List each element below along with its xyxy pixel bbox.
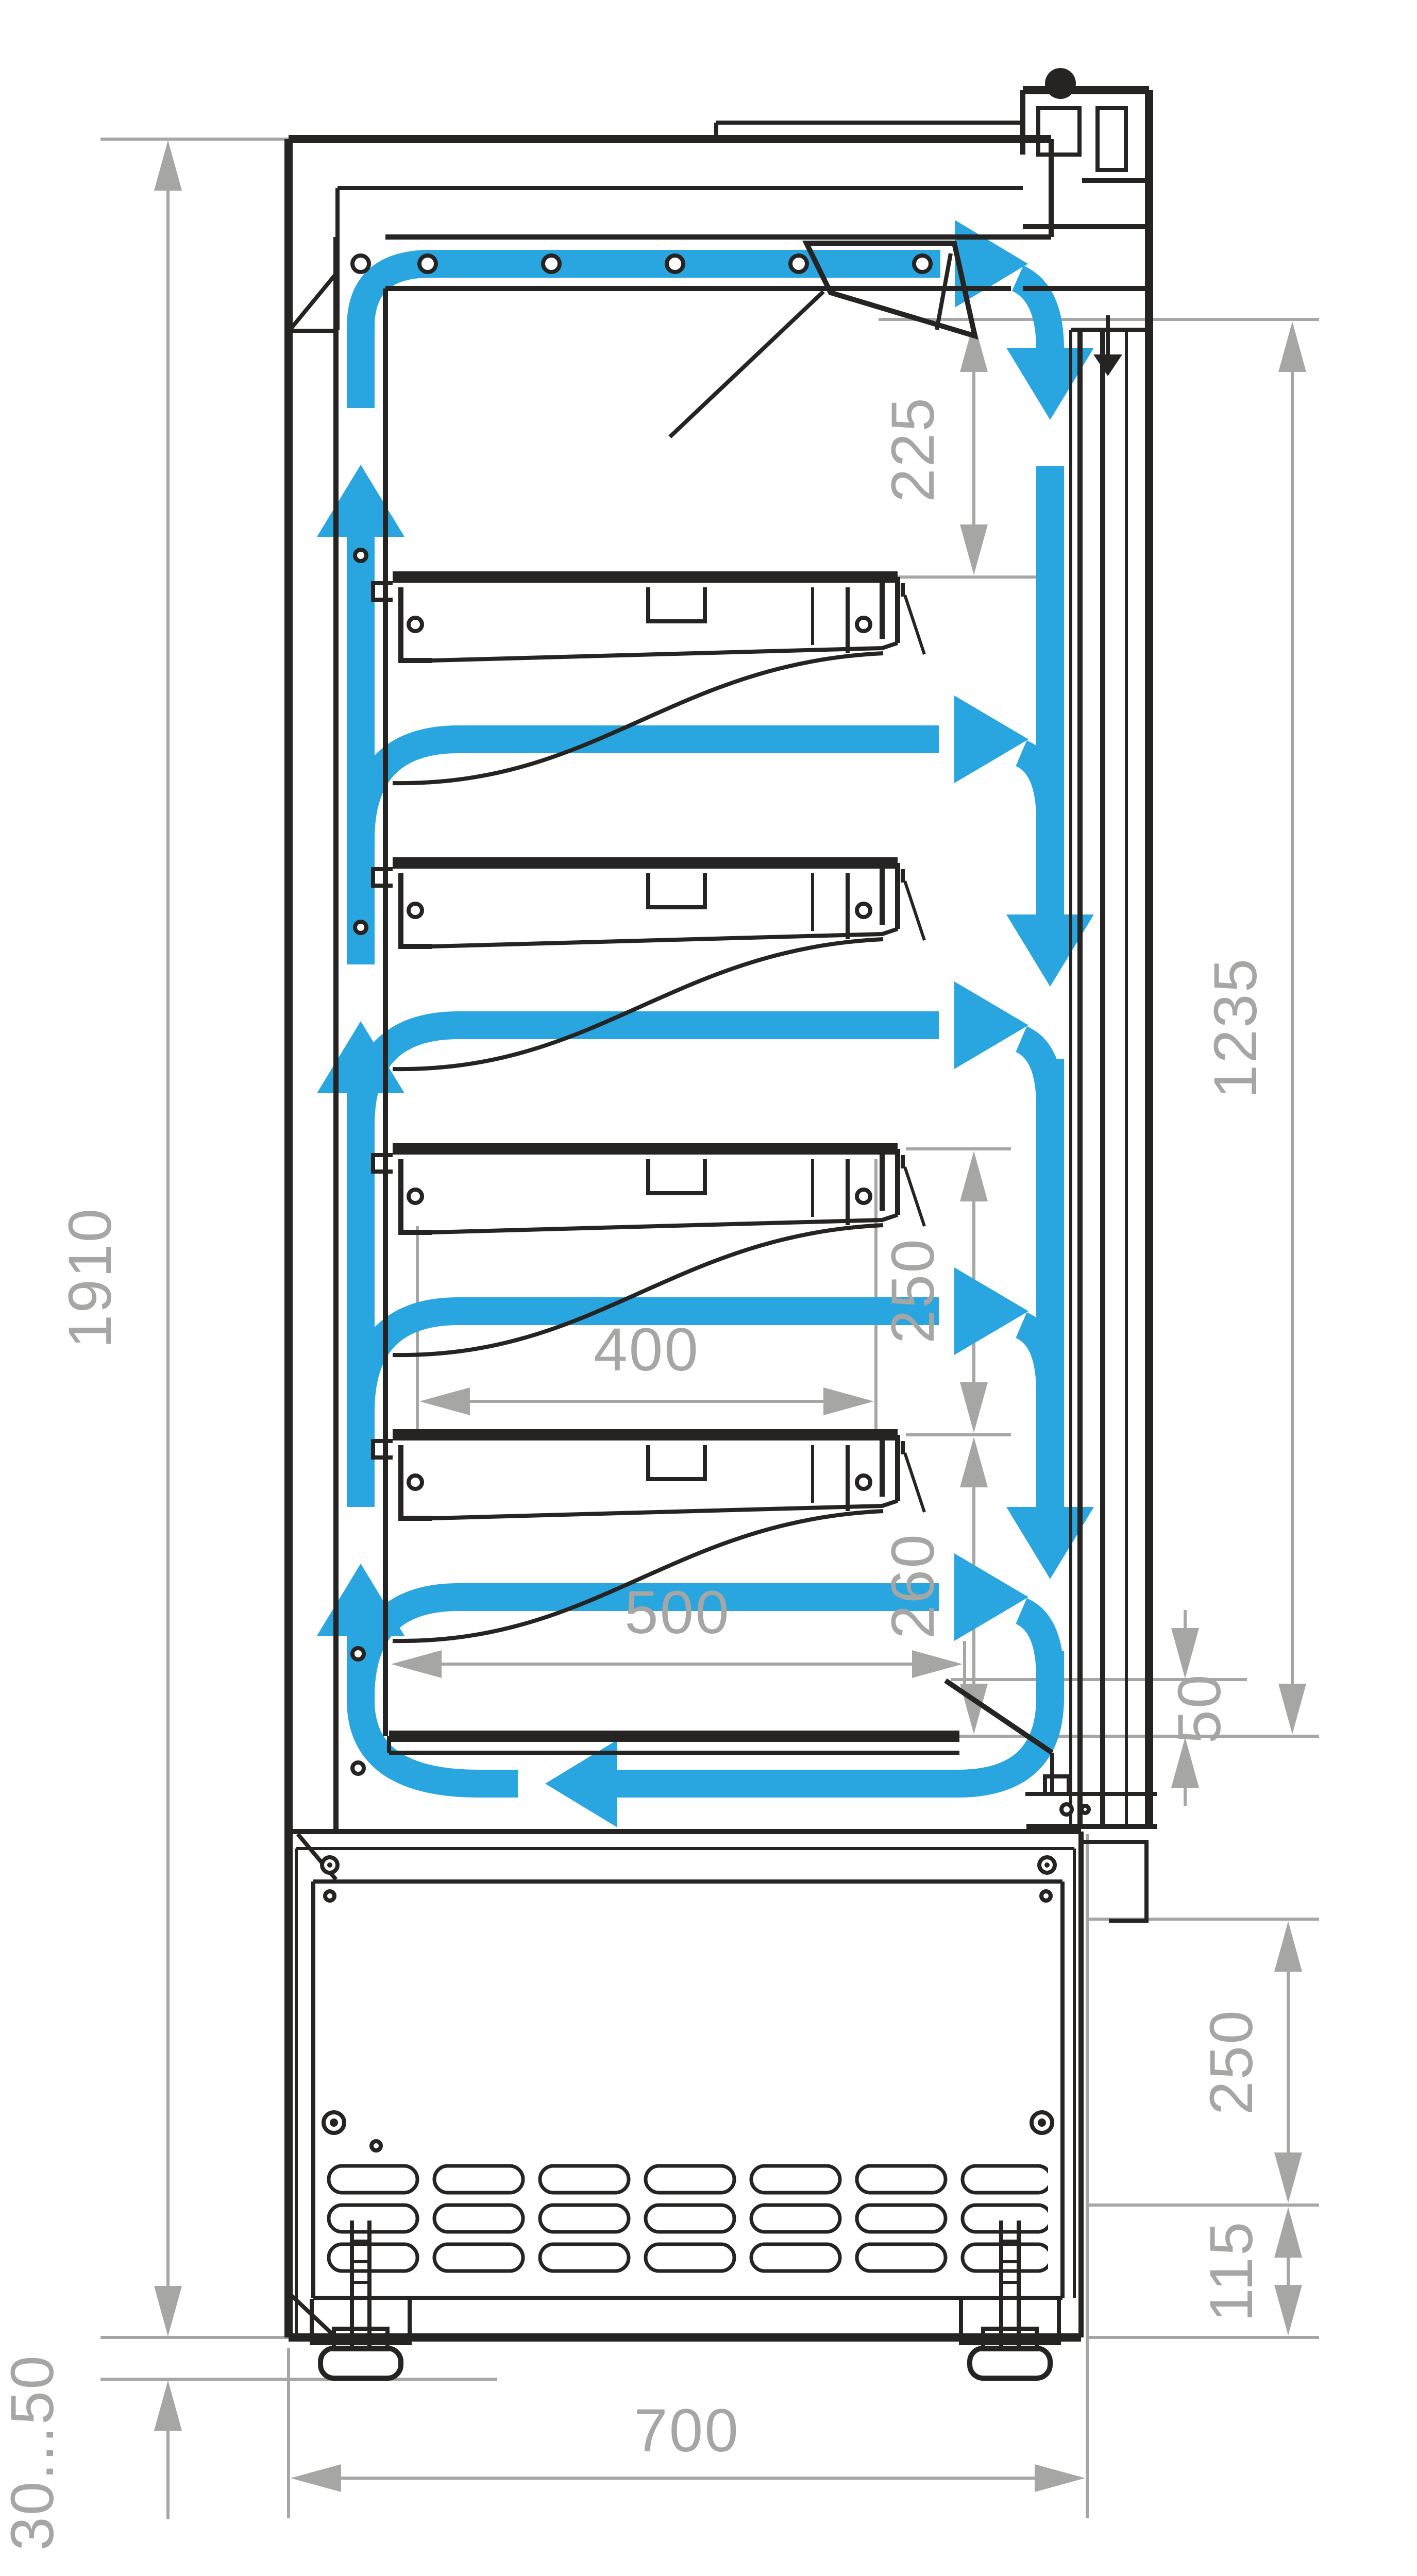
cabinet-outline [289,68,1157,2378]
dim-label-bottom-shelf-gap: 260 [879,1533,947,1639]
dimension-overall-depth [291,2464,1085,2492]
dim-label-overall-height: 1910 [56,1207,124,1349]
dim-label-base-grille: 115 [1197,2220,1266,2321]
airflow-bottom-return [613,1651,1050,1784]
dim-label-deck-depth: 500 [625,1579,731,1647]
shelf-cable [393,939,883,1069]
dim-label-shelf-depth: 400 [594,1316,700,1384]
airflow-shelf-supply-1 [361,696,1050,840]
dim-label-shelf-spacing: 250 [879,1238,947,1344]
dimension-base-grille [1274,2207,1302,2335]
dimension-deck-depth [391,1650,963,1678]
airflow-canopy-run [361,264,940,408]
dim-label-base-upper: 250 [1197,2009,1266,2115]
door-sill [1025,1776,1157,1826]
airflow-shelf-supply-2 [361,981,1050,1126]
dimension-top-clearance [960,321,988,575]
dim-label-overall-depth: 700 [634,2397,740,2465]
airflow-up-arrowhead [317,465,404,537]
dimension-shelf-depth [419,1387,874,1415]
display-case-cross-section-diagram: 1910 30...50 700 400 500 225 250 260 123… [0,0,1417,2576]
glass-door [1071,330,1149,1826]
dimension-foot-adjust [154,2380,182,2519]
air-inlet-arrow-icon [1093,354,1122,376]
diagram-page: 1910 30...50 700 400 500 225 250 260 123… [0,0,1417,2576]
dimension-overall-height [154,140,182,2336]
dim-label-inner-height: 1235 [1202,957,1270,1099]
hinge-pin [1045,68,1076,99]
dimension-base-upper [1274,1921,1302,2203]
dim-label-discharge-gap: 50 [1166,1673,1234,1743]
shelf-cable [393,653,883,783]
compartment-bracket [1081,1842,1146,1921]
dim-label-foot-adjust: 30...50 [0,2354,66,2551]
ventilation-grille [325,2160,1048,2277]
dimension-inner-height [1278,321,1306,1734]
dim-label-top-clearance: 225 [879,396,947,502]
